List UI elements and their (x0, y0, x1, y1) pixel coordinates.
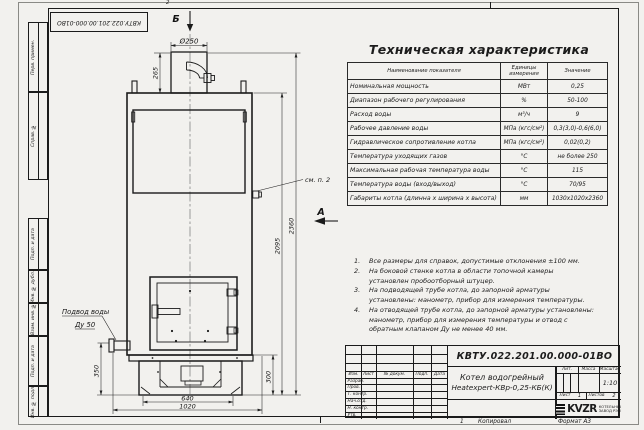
spec-header-value: Значение (548, 63, 608, 80)
spec-cell: МВт (501, 80, 548, 94)
rev-header-docnum: № докум. (376, 371, 413, 378)
table-row: Температура уходящих газов°Сне более 250 (348, 150, 608, 164)
spec-table-title: Техническая характеристика (350, 42, 608, 57)
spec-cell: Расход воды (348, 108, 501, 122)
kvzr-logo-icon (556, 404, 565, 415)
spec-cell: 0,25 (548, 80, 608, 94)
stamp-col-ref-number: Справ. № (28, 92, 48, 180)
title-block: Изм. Лист № докум. Подп. Дата Разраб. Пр… (345, 345, 620, 418)
drawing-sheet: 2 Перв. примен. Справ. № Подп. и дата Ин… (0, 0, 644, 430)
note-item: 1.Все размеры для справок, допустимые от… (354, 257, 594, 267)
sheets-value: 2 (607, 392, 621, 399)
table-row: Расход водым³/ч9 (348, 108, 608, 122)
spec-cell: Температура воды (вход/выход) (348, 178, 501, 192)
scale-value: 1:10 (599, 373, 621, 392)
spec-table: Наименование показателя Единицы измерени… (347, 62, 608, 206)
spec-cell: 0,02(0,2) (548, 136, 608, 150)
table-row: Максимальная рабочая температура воды°С1… (348, 164, 608, 178)
spec-cell: 70/95 (548, 178, 608, 192)
stamp-col-repl-inv: Взам. инв. № (28, 303, 48, 336)
scale-label: Масштаб (599, 366, 621, 373)
stamp-col-inv-dupl: Инв. № дубл. (28, 270, 48, 303)
kvzr-logo-text: KVZR (567, 403, 597, 415)
spec-cell: 9 (548, 108, 608, 122)
spec-cell: не более 250 (548, 150, 608, 164)
product-name: Котел водогрейный Heatexpert-КВр-0,25-КБ… (448, 366, 556, 399)
doc-number-rotated: КВТУ.022.201.00.000-01ВО (57, 19, 141, 26)
spec-cell: Температура уходящих газов (348, 150, 501, 164)
copied-label: Копировал (478, 419, 511, 425)
stamp-col-sign-date-2: Подп. и дата (28, 336, 48, 386)
spec-cell: % (501, 94, 548, 108)
table-row: Номинальная мощностьМВт0,25 (348, 80, 608, 94)
table-row: Гидравлическое сопротивление котлаМПа (к… (348, 136, 608, 150)
spec-cell: °С (501, 164, 548, 178)
table-row: Рабочее давление водыМПа (кгс/см²)0,3(3,… (348, 122, 608, 136)
fold-tick-top (490, 2, 491, 8)
sheet-label: Лист (556, 392, 574, 399)
note-item: 2.На боковой стенке котла в области топо… (354, 267, 594, 287)
company-name: КОТЕЛЬНЫЙ ЗАВОД РЭП (599, 405, 621, 414)
doc-number-rotated-box: КВТУ.022.201.00.000-01ВО (50, 12, 148, 32)
spec-cell: 115 (548, 164, 608, 178)
mass-label: Масса (578, 366, 599, 373)
note-item: 3.На подводящей трубе котла, до запорной… (354, 286, 594, 306)
lit-label: Лит. (556, 366, 578, 373)
table-row: Габариты котла (длинна х ширина х высота… (348, 192, 608, 206)
rev-header-sign: Подп. (413, 371, 431, 378)
spec-cell: Максимальная рабочая температура воды (348, 164, 501, 178)
spec-cell: °С (501, 150, 548, 164)
note-item: 4.На отводящей трубе котла, до запорной … (354, 306, 594, 335)
spec-cell: м³/ч (501, 108, 548, 122)
spec-header-units: Единицы измерения (501, 63, 548, 80)
spec-cell: МПа (кгс/см²) (501, 122, 548, 136)
spec-cell: Номинальная мощность (348, 80, 501, 94)
spec-header-name: Наименование показателя (348, 63, 501, 80)
spec-cell: °С (501, 178, 548, 192)
rev-header-date: Дата (431, 371, 448, 378)
sign-row-utv: Утв. (346, 412, 376, 419)
zone-mark-top: 2 (166, 0, 170, 6)
spec-cell: Рабочее давление воды (348, 122, 501, 136)
spec-cell: мм (501, 192, 548, 206)
spec-cell: Гидравлическое сопротивление котла (348, 136, 501, 150)
spec-cell: МПа (кгс/см²) (501, 136, 548, 150)
spec-cell: 1030х1020х2360 (548, 192, 608, 206)
spec-header-row: Наименование показателя Единицы измерени… (348, 63, 608, 80)
spec-cell: Габариты котла (длинна х ширина х высота… (348, 192, 501, 206)
sheet-value: 1 (574, 392, 585, 399)
sheets-label: Листов (586, 392, 607, 399)
table-row: Температура воды (вход/выход)°С70/95 (348, 178, 608, 192)
spec-cell: Диапазон рабочего регулирования (348, 94, 501, 108)
zone-mark-bottom: 1 (460, 419, 464, 425)
company-cell: KVZR КОТЕЛЬНЫЙ ЗАВОД РЭП (556, 399, 621, 419)
spec-cell: 50-100 (548, 94, 608, 108)
spec-cell: 0,3(3,0)-0,6(6,0) (548, 122, 608, 136)
table-row: Диапазон рабочего регулирования%50-100 (348, 94, 608, 108)
stamp-col-first-use: Перв. примен. (28, 22, 48, 92)
notes-list: 1.Все размеры для справок, допустимые от… (354, 257, 594, 335)
stamp-col-sign-date-1: Подп. и дата (28, 218, 48, 270)
format-label: Формат А3 (558, 419, 591, 425)
doc-number-main: КВТУ.022.201.00.000-01ВО (448, 346, 621, 366)
fold-tick-bottom (320, 417, 321, 423)
stamp-col-inv-orig: Инв. № подл. (28, 386, 48, 417)
